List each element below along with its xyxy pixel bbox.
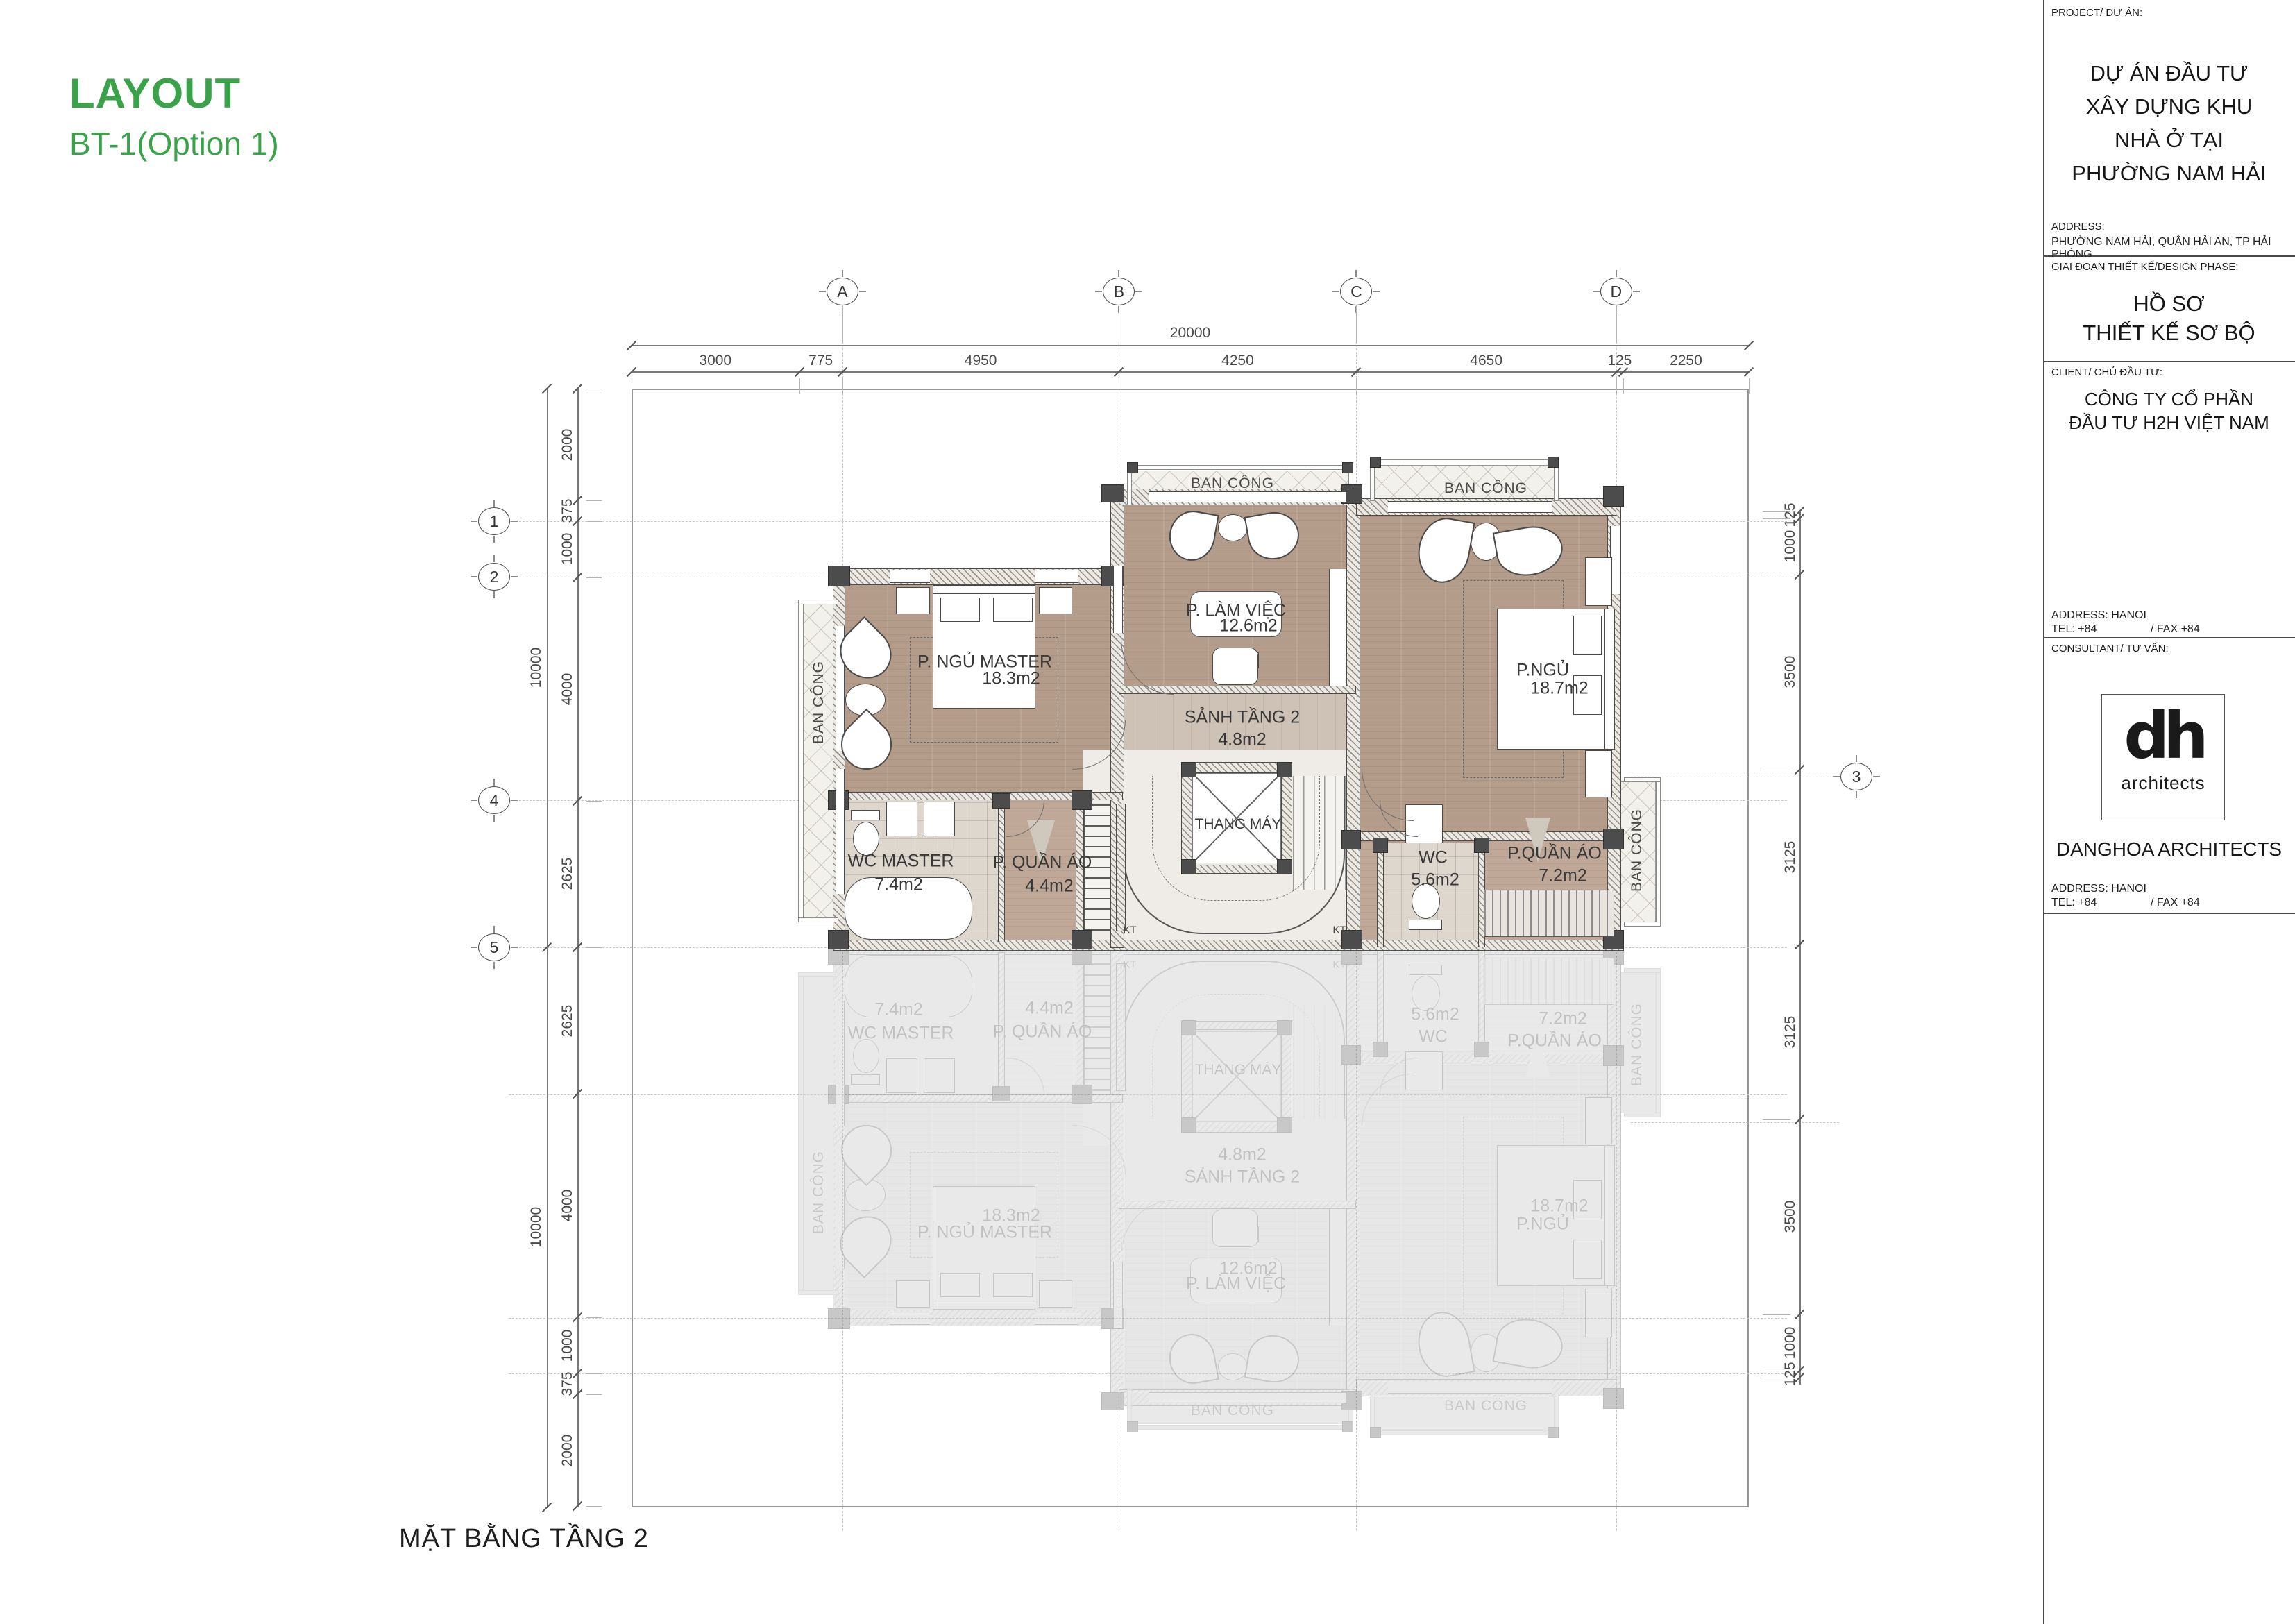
furniture xyxy=(933,1301,1035,1310)
office2-tel: TEL: +84 xyxy=(2051,897,2097,909)
desk-chair xyxy=(1212,1210,1258,1247)
dim-right-segment: 3125 xyxy=(1782,841,1799,874)
dim-right-segment: 125 xyxy=(1782,503,1799,527)
address-label: ADDRESS: xyxy=(2051,221,2105,232)
drawing-sheet: LAYOUT BT-1(Option 1) 200003000775495042… xyxy=(0,0,2295,1624)
window xyxy=(890,1312,930,1325)
bubble-tick xyxy=(493,536,495,543)
wall xyxy=(1181,1021,1292,1030)
window xyxy=(1149,1392,1346,1403)
bubble-tick xyxy=(493,555,495,562)
bubble-tick xyxy=(1095,291,1102,292)
office2-fax: / FAX +84 xyxy=(2151,897,2200,909)
bubble-tick xyxy=(493,962,495,969)
dim-top-segment: 3000 xyxy=(699,353,731,369)
wall xyxy=(1346,484,1360,948)
column xyxy=(1603,1388,1624,1409)
room-label: 18.7m2 xyxy=(1530,679,1588,699)
dim-extension xyxy=(1616,378,1617,394)
furniture-round xyxy=(1218,514,1248,541)
bubble-tick xyxy=(511,521,518,522)
title-block-border xyxy=(2043,0,2044,1624)
room-label: 18.3m2 xyxy=(982,669,1040,689)
column xyxy=(1181,859,1196,874)
phase-label: GIAI ĐOẠN THIẾT KẾ/DESIGN PHASE: xyxy=(2051,261,2239,273)
balcony-rail xyxy=(1370,459,1559,464)
balcony-rail xyxy=(1370,1430,1559,1435)
dim-extension xyxy=(632,378,632,394)
balcony-rail xyxy=(1624,968,1661,973)
dim-line xyxy=(547,389,548,947)
dim-left-segment: 4000 xyxy=(559,1190,576,1222)
dim-top-segment: 125 xyxy=(1607,353,1632,369)
furniture xyxy=(886,1058,917,1093)
wall xyxy=(1181,1122,1292,1133)
project-name-line1: DỰ ÁN ĐẦU TƯ xyxy=(2043,61,2295,86)
office-tel: TEL: +84 xyxy=(2051,623,2097,636)
client-value-line1: CÔNG TY CỔ PHẦN xyxy=(2043,389,2295,410)
room-label: P. QUẦN ÁO xyxy=(993,853,1092,873)
room-label: WC MASTER xyxy=(848,1024,954,1044)
bubble-tick xyxy=(511,947,518,948)
bubble-tick xyxy=(859,291,866,292)
dim-extension xyxy=(586,1394,602,1395)
furniture xyxy=(993,598,1033,622)
office-fax: / FAX +84 xyxy=(2151,623,2200,636)
furniture xyxy=(1585,557,1612,606)
bubble-tick xyxy=(1332,291,1339,292)
room-label: 18.3m2 xyxy=(982,1206,1040,1226)
dim-top-segment: 4250 xyxy=(1221,353,1254,369)
wall xyxy=(1116,963,1126,1091)
furniture xyxy=(851,810,880,820)
window xyxy=(1388,501,1552,513)
furniture xyxy=(1604,1145,1615,1286)
dim-extension xyxy=(586,1373,602,1374)
project-label: PROJECT/ DỰ ÁN: xyxy=(2051,7,2142,19)
room-label: 12.6m2 xyxy=(1219,616,1277,636)
dim-left-segment: 375 xyxy=(559,1371,576,1396)
window xyxy=(890,570,930,583)
dim-left-segment: 4000 xyxy=(559,673,576,705)
dim-left-segment: 2000 xyxy=(559,428,576,461)
dim-line xyxy=(632,345,1749,346)
dim-extension xyxy=(799,378,800,394)
dim-line xyxy=(547,947,548,1507)
dim-left-segment: 1000 xyxy=(559,533,576,566)
wall xyxy=(1181,762,1192,874)
furniture xyxy=(1409,965,1442,975)
dim-top-segment: 4650 xyxy=(1470,353,1502,369)
consultant-logo: dh architects xyxy=(2101,694,2225,820)
window xyxy=(836,1001,845,1126)
room-label: P.NGỦ xyxy=(1516,1215,1569,1235)
room-label: SẢNH TẦNG 2 xyxy=(1185,708,1300,728)
furniture xyxy=(940,598,980,622)
dim-total-height: 10000 xyxy=(528,1207,545,1247)
room-label: 12.6m2 xyxy=(1219,1259,1277,1279)
column xyxy=(1181,1117,1196,1133)
phase-value-line2: THIẾT KẾ SƠ BỘ xyxy=(2043,321,2295,346)
project-name-line3: NHÀ Ở TẠI xyxy=(2043,128,2295,153)
column xyxy=(1373,838,1388,853)
column xyxy=(1277,762,1292,777)
wall xyxy=(1377,841,1384,947)
room-label: 18.7m2 xyxy=(1530,1196,1588,1217)
bubble-tick xyxy=(471,800,477,801)
column xyxy=(1101,1392,1124,1410)
balcony-rail xyxy=(798,972,804,1295)
dim-right-segment: 3500 xyxy=(1782,1201,1799,1233)
bubble-tick xyxy=(493,926,495,933)
logo-architects-text: architects xyxy=(2102,772,2224,794)
consultant-label: CONSULTANT/ TƯ VẤN: xyxy=(2051,643,2169,654)
room-label: BAN CÔNG xyxy=(1444,1398,1527,1414)
grid-bubble-C: C xyxy=(1340,278,1372,305)
furniture xyxy=(1585,1289,1612,1337)
dim-total-height: 10000 xyxy=(528,648,545,688)
dim-extension xyxy=(586,521,602,522)
bubble-tick xyxy=(493,500,495,507)
bubble-stem xyxy=(1356,305,1357,344)
dim-extension xyxy=(586,1317,602,1318)
bubble-tick xyxy=(511,576,518,577)
bubble-tick xyxy=(1856,791,1857,798)
dim-extension xyxy=(1749,378,1750,394)
wardrobe xyxy=(1484,958,1614,1005)
column xyxy=(1127,462,1138,473)
wall xyxy=(1281,762,1292,874)
consultant-name: DANGHOA ARCHITECTS xyxy=(2043,838,2295,861)
bubble-tick xyxy=(1873,776,1880,777)
divider xyxy=(2043,913,2295,914)
bubble-tick xyxy=(493,779,495,786)
furniture xyxy=(1585,750,1612,797)
desk-chair xyxy=(1212,648,1258,685)
dim-extension xyxy=(1623,378,1624,394)
room-label: 4.8m2 xyxy=(1218,730,1266,750)
window xyxy=(1388,1382,1552,1394)
furniture xyxy=(1409,920,1442,930)
dim-top-segment: 775 xyxy=(808,353,833,369)
room-label: 7.2m2 xyxy=(1539,1009,1586,1029)
bubble-tick xyxy=(1135,291,1142,292)
column xyxy=(1072,930,1092,949)
dim-right-segment: 125 xyxy=(1782,1362,1799,1386)
wall xyxy=(1346,947,1360,1410)
window xyxy=(1329,1209,1347,1326)
balcony-rail xyxy=(1127,1425,1353,1430)
grid-bubble-B: B xyxy=(1103,278,1135,305)
dim-line xyxy=(1799,511,1801,1385)
room-label: WC MASTER xyxy=(848,852,954,872)
column xyxy=(828,1308,850,1329)
room-label: 7.4m2 xyxy=(874,1000,922,1020)
column xyxy=(828,566,850,586)
window xyxy=(1035,1312,1078,1325)
furniture xyxy=(1573,1240,1602,1279)
wardrobe xyxy=(1484,890,1614,937)
grid-bubble-4: 4 xyxy=(478,786,510,814)
bubble-tick xyxy=(1616,270,1617,277)
furniture xyxy=(1604,609,1615,750)
room-label: KT xyxy=(1123,959,1136,971)
column xyxy=(1181,1020,1196,1035)
grid-bubble-D: D xyxy=(1600,278,1632,305)
column xyxy=(1342,1421,1353,1432)
room-label: P.QUẦN ÁO xyxy=(1507,844,1602,864)
window xyxy=(1329,569,1347,686)
dim-extension xyxy=(586,801,602,802)
dim-right-segment: 1000 xyxy=(1782,1326,1799,1359)
dim-left-segment: 2000 xyxy=(559,1434,576,1466)
bubble-tick xyxy=(1833,776,1840,777)
room-label: SẢNH TẦNG 2 xyxy=(1185,1167,1300,1187)
window xyxy=(1113,566,1123,633)
grid-bubble-3: 3 xyxy=(1840,763,1872,790)
furniture xyxy=(1039,1280,1072,1308)
column xyxy=(1127,1421,1138,1432)
project-name-line4: PHƯỜNG NAM HẢI xyxy=(2043,161,2295,186)
column xyxy=(1548,457,1559,468)
room-label: P.NGỦ xyxy=(1516,661,1569,681)
dim-top-segment: 4950 xyxy=(965,353,997,369)
column xyxy=(1341,830,1361,849)
balcony-rail xyxy=(798,917,838,922)
wall xyxy=(1181,1020,1192,1133)
column xyxy=(1603,486,1624,507)
room-label: BAN CÔNG xyxy=(777,694,861,711)
balcony-rail xyxy=(1624,1113,1661,1117)
dim-extension xyxy=(586,1506,602,1507)
wall xyxy=(1181,865,1292,874)
dim-right-segment: 1000 xyxy=(1782,530,1799,563)
column xyxy=(1277,1117,1292,1133)
furniture xyxy=(940,1273,980,1297)
column xyxy=(1072,1085,1092,1104)
bubble-tick xyxy=(1856,755,1857,762)
room-label: P.QUẦN ÁO xyxy=(1507,1031,1602,1051)
column xyxy=(1474,1042,1489,1057)
bubble-tick xyxy=(1633,291,1640,292)
dim-extension xyxy=(1763,1314,1790,1315)
room-label: BAN CÔNG xyxy=(1444,480,1527,497)
room-label: BAN CÔNG xyxy=(1595,1036,1679,1053)
client-value-line2: ĐẦU TƯ H2H VIỆT NAM xyxy=(2043,412,2295,434)
room-label: 7.2m2 xyxy=(1539,866,1586,886)
column xyxy=(1370,1427,1381,1438)
room-label: THANG MÁY xyxy=(1195,1062,1282,1079)
room-label: 7.4m2 xyxy=(874,875,922,895)
dim-extension xyxy=(1763,1119,1790,1120)
furniture-round xyxy=(853,1039,879,1073)
bubble-tick xyxy=(1118,270,1119,277)
column xyxy=(1277,1020,1292,1035)
dim-right-segment: 3125 xyxy=(1782,1015,1799,1048)
column xyxy=(1101,484,1124,502)
dim-extension xyxy=(1356,378,1357,394)
logo-dh-icon: dh xyxy=(2102,699,2224,773)
dim-extension xyxy=(842,378,843,394)
dim-left-segment: 1000 xyxy=(559,1329,576,1362)
balcony-rail xyxy=(1127,465,1353,470)
room-label: KT xyxy=(1332,924,1346,936)
room-label: 5.6m2 xyxy=(1411,1005,1459,1025)
column xyxy=(1548,1427,1559,1438)
divider xyxy=(2043,637,2295,638)
furniture xyxy=(993,1273,1033,1297)
furniture xyxy=(1573,616,1602,655)
wall xyxy=(1116,804,1126,931)
column xyxy=(1181,762,1196,777)
phase-value-line1: HỒ SƠ xyxy=(2043,291,2295,316)
room-label: 5.6m2 xyxy=(1411,870,1459,890)
dim-extension xyxy=(586,577,602,578)
title-block: PROJECT/ DỰ ÁN: DỰ ÁN ĐẦU TƯ XÂY DỰNG KH… xyxy=(2043,0,2295,1624)
furniture xyxy=(924,1058,955,1093)
room-label: 4.4m2 xyxy=(1025,999,1073,1019)
column xyxy=(1277,859,1292,874)
dim-top-segment: 2250 xyxy=(1670,353,1702,369)
dim-extension xyxy=(1763,770,1790,770)
dim-extension xyxy=(586,500,602,501)
window xyxy=(1113,1262,1123,1328)
window xyxy=(1149,491,1346,502)
office-address: ADDRESS: HANOI xyxy=(2051,609,2146,622)
bubble-tick xyxy=(842,270,843,277)
client-label: CLIENT/ CHỦ ĐẦU TƯ: xyxy=(2051,366,2162,378)
bubble-tick xyxy=(471,947,477,948)
column xyxy=(1342,462,1353,473)
plan-caption: MẶT BẰNG TẦNG 2 xyxy=(399,1524,649,1554)
balcony-rail xyxy=(1624,777,1661,782)
furniture xyxy=(1585,1097,1612,1144)
bubble-tick xyxy=(1593,291,1600,292)
floor-plan-mirrored-unit: P. NGỦ MASTER18.3m2P. LÀM VIỆC12.6m2P.NG… xyxy=(763,947,1666,1450)
bubble-tick xyxy=(1355,270,1357,277)
room-label: 4.4m2 xyxy=(1025,877,1073,897)
bubble-tick xyxy=(511,800,518,801)
bubble-tick xyxy=(493,815,495,822)
furniture xyxy=(924,802,955,836)
room-label: WC xyxy=(1419,848,1448,868)
dim-extension xyxy=(1119,378,1119,394)
room-label: BAN CÔNG xyxy=(777,1184,861,1201)
bubble-tick xyxy=(471,576,477,577)
furniture-round xyxy=(1218,1353,1248,1380)
furniture xyxy=(896,1280,930,1308)
balcony-rail xyxy=(798,600,804,922)
floor-plan-level2: P. NGỦ MASTER18.3m2P. LÀM VIỆC12.6m2P.NG… xyxy=(763,444,1666,947)
column xyxy=(1373,1042,1388,1057)
grid-bubble-2: 2 xyxy=(478,563,510,591)
wall xyxy=(837,568,1123,585)
column xyxy=(1072,790,1092,810)
dim-extension xyxy=(586,1094,602,1094)
window xyxy=(836,769,845,894)
dim-extension xyxy=(1763,945,1790,945)
dim-extension xyxy=(1763,575,1790,575)
bubble-tick xyxy=(1373,291,1380,292)
grid-bubble-A: A xyxy=(827,278,858,305)
room-label: KT xyxy=(1123,924,1136,936)
address-value: PHƯỜNG NAM HẢI, QUẬN HẢI AN, TP HẢI PHÒN… xyxy=(2051,236,2295,261)
room-label: 4.8m2 xyxy=(1218,1145,1266,1165)
grid-bubble-5: 5 xyxy=(478,933,510,961)
dim-extension xyxy=(586,389,602,389)
column xyxy=(1370,457,1381,468)
grid-bubble-1: 1 xyxy=(478,507,510,535)
room-label: KT xyxy=(1332,959,1346,971)
dim-left-segment: 375 xyxy=(559,499,576,523)
room-label: BAN CÔNG xyxy=(1191,475,1274,492)
furniture xyxy=(896,587,930,614)
room-label: P. QUẦN ÁO xyxy=(993,1022,1092,1042)
dim-left-segment: 2625 xyxy=(559,1004,576,1037)
dim-extension xyxy=(586,947,602,948)
project-name-line2: XÂY DỰNG KHU xyxy=(2043,94,2295,119)
furniture xyxy=(851,1074,880,1085)
room-label: BAN CÔNG xyxy=(1595,842,1679,858)
dim-right-segment: 3500 xyxy=(1782,656,1799,688)
furniture xyxy=(933,585,1035,594)
column xyxy=(1341,1045,1361,1065)
bubble-stem xyxy=(842,305,843,344)
bubble-tick xyxy=(471,521,477,522)
bubble-tick xyxy=(819,291,826,292)
room-label: WC xyxy=(1419,1027,1448,1047)
dim-left-segment: 2625 xyxy=(559,858,576,890)
balcony-rail xyxy=(798,1290,838,1295)
divider xyxy=(2043,361,2295,362)
balcony-rail xyxy=(1624,922,1661,927)
wall xyxy=(1181,762,1292,773)
wall xyxy=(1281,1020,1292,1133)
wall xyxy=(833,940,1624,951)
bubble-stem xyxy=(1616,305,1617,344)
bubble-tick xyxy=(493,591,495,598)
room-label: BAN CÔNG xyxy=(1191,1403,1274,1419)
dim-total-width: 20000 xyxy=(1170,325,1210,341)
furniture xyxy=(1039,587,1072,614)
balcony-rail xyxy=(798,600,838,604)
balcony-rail xyxy=(798,972,838,977)
room-label: THANG MÁY xyxy=(1195,816,1282,833)
office2-address: ADDRESS: HANOI xyxy=(2051,883,2146,895)
wall xyxy=(837,1310,1123,1326)
bubble-stem xyxy=(1119,305,1119,344)
column xyxy=(828,930,849,949)
column xyxy=(1474,838,1489,853)
window xyxy=(1035,570,1078,583)
furniture xyxy=(886,802,917,836)
wall xyxy=(1377,947,1384,1054)
